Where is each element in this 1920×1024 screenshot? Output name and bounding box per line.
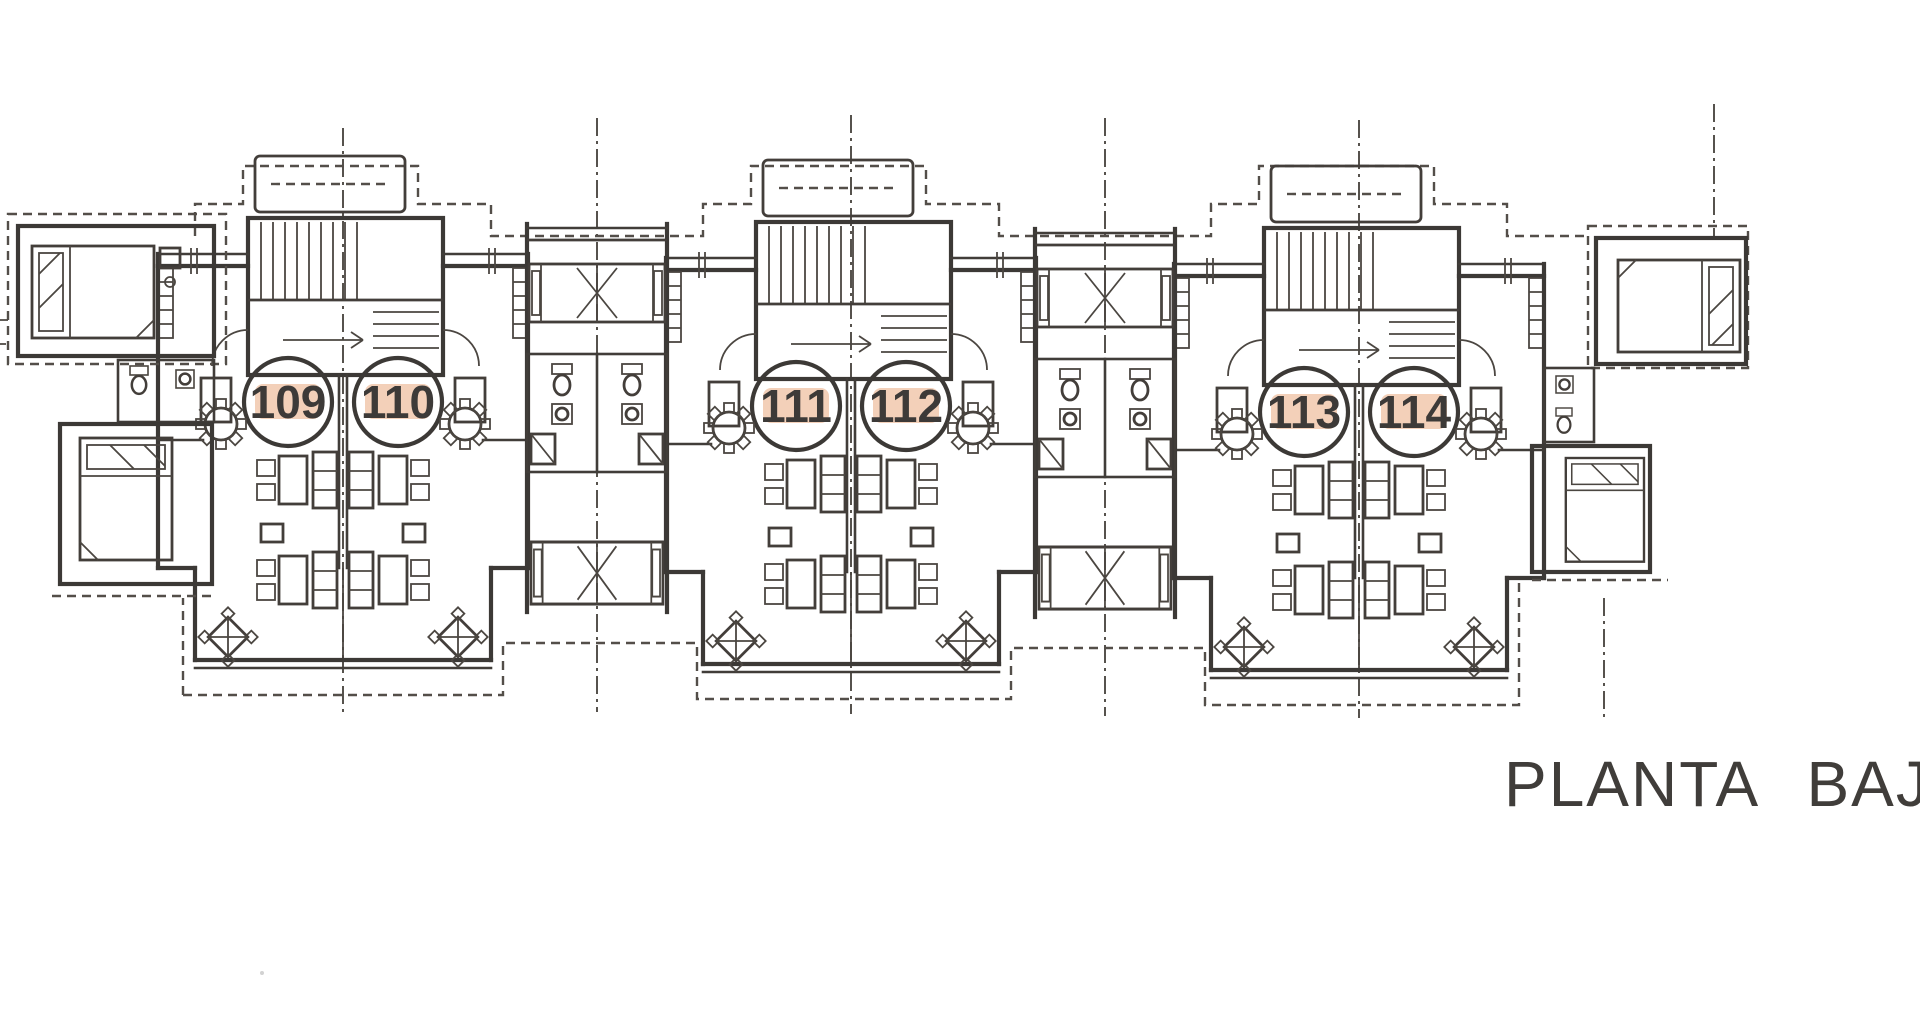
block-2 <box>666 160 1036 672</box>
connector-2 <box>1035 229 1175 617</box>
floor-plan-drawing: 109 110 111 112 113 114 PLANTA BAJ <box>0 0 1920 1024</box>
unit-number-114: 114 <box>1377 386 1452 438</box>
scan-speck <box>260 971 264 975</box>
connector-1 <box>527 224 667 612</box>
plan-linework <box>0 104 1748 975</box>
unit-number-110: 110 <box>361 376 435 428</box>
unit-number-113: 113 <box>1267 386 1341 438</box>
plan-title: PLANTA BAJ <box>1504 748 1920 820</box>
unit-number-112: 112 <box>869 380 943 432</box>
floor-plan-page: 109 110 111 112 113 114 PLANTA BAJ <box>0 0 1920 1024</box>
unit-number-111: 111 <box>760 380 832 432</box>
right-wing <box>1532 226 1748 580</box>
left-wing <box>0 214 226 596</box>
unit-number-109: 109 <box>250 376 327 428</box>
